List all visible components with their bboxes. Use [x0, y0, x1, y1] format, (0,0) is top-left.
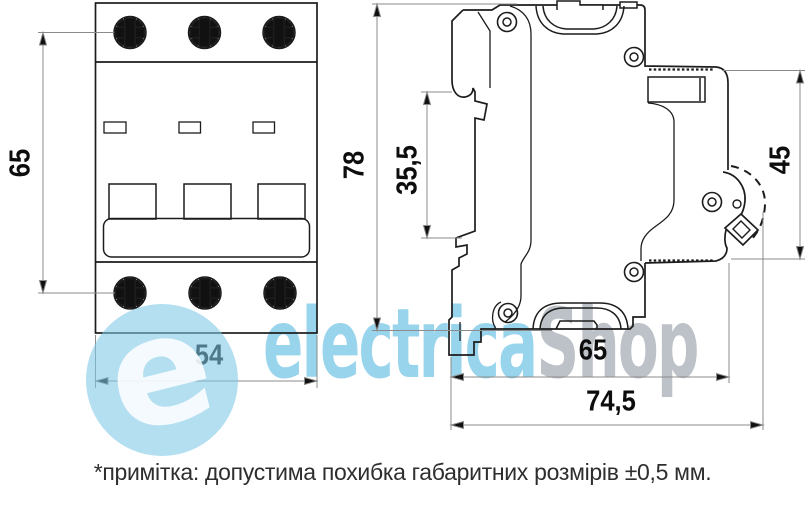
side-body-outline: [449, 10, 645, 355]
indicator-windows: [104, 122, 275, 133]
watermark-logo: e: [86, 304, 238, 456]
inner-contours: [460, 6, 674, 341]
front-view: [96, 3, 318, 333]
pozidriv-screw-icon: [263, 17, 295, 49]
pozidriv-screw-icon: [189, 17, 221, 49]
dim-label-front-height: 65: [5, 149, 38, 177]
pozidriv-screw-icon: [264, 277, 296, 309]
dim-label-front-depth: 45: [765, 146, 798, 174]
dim-label-side-height: 78: [339, 151, 372, 179]
handle-rail: [104, 219, 310, 258]
rivets: [498, 13, 742, 323]
terminal-recess: [648, 77, 705, 102]
dim-front-height: [38, 33, 115, 294]
toggle-lever: [725, 214, 758, 245]
side-front-lower: [645, 230, 727, 263]
toggle-lever-top: [536, 1, 637, 34]
rivet-icon: [703, 193, 722, 212]
bottom-arch: [533, 303, 628, 329]
side-view: [449, 1, 765, 355]
rivet-icon: [625, 48, 644, 67]
rivet-icon: [498, 13, 517, 32]
dim-label-rail-slot: 35,5: [392, 145, 425, 195]
dim-label-total-depth: 74,5: [586, 386, 636, 419]
rivet-icon: [625, 263, 644, 282]
dim-label-body-depth: 65: [579, 335, 607, 368]
toggle-handles: [104, 184, 310, 257]
pozidriv-screw-icon: [114, 17, 146, 49]
pivot-pin-icon: [733, 200, 741, 208]
dim-rail-slot: [421, 92, 462, 238]
terminal-screws-top: [114, 17, 295, 49]
dimension-drawing: electricaShop: [0, 0, 805, 514]
tolerance-note: *примітка: допустима похибка габаритних …: [0, 459, 805, 486]
